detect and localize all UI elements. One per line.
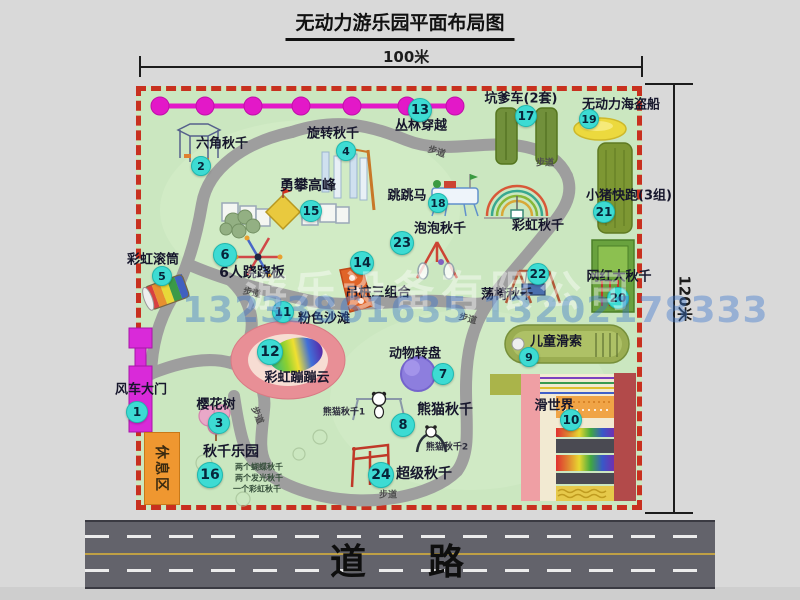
dim-top-tick-right bbox=[641, 56, 643, 77]
watermark-phone: 13233861635 13202178333 bbox=[182, 290, 769, 331]
road-label: 道路 bbox=[330, 533, 526, 585]
dim-top-tick-left bbox=[139, 56, 141, 77]
dim-right-tick-top bbox=[645, 83, 693, 85]
rest-area-label: 休息区 bbox=[152, 445, 172, 493]
dim-width-label: 100米 bbox=[383, 46, 429, 67]
park-layout-poster: 无动力游乐园平面布局图 100米 120米 bbox=[0, 0, 800, 600]
dim-right-tick-bottom bbox=[645, 512, 693, 514]
rest-area-box: 休息区 bbox=[144, 432, 180, 505]
page-title: 无动力游乐园平面布局图 bbox=[285, 8, 514, 41]
